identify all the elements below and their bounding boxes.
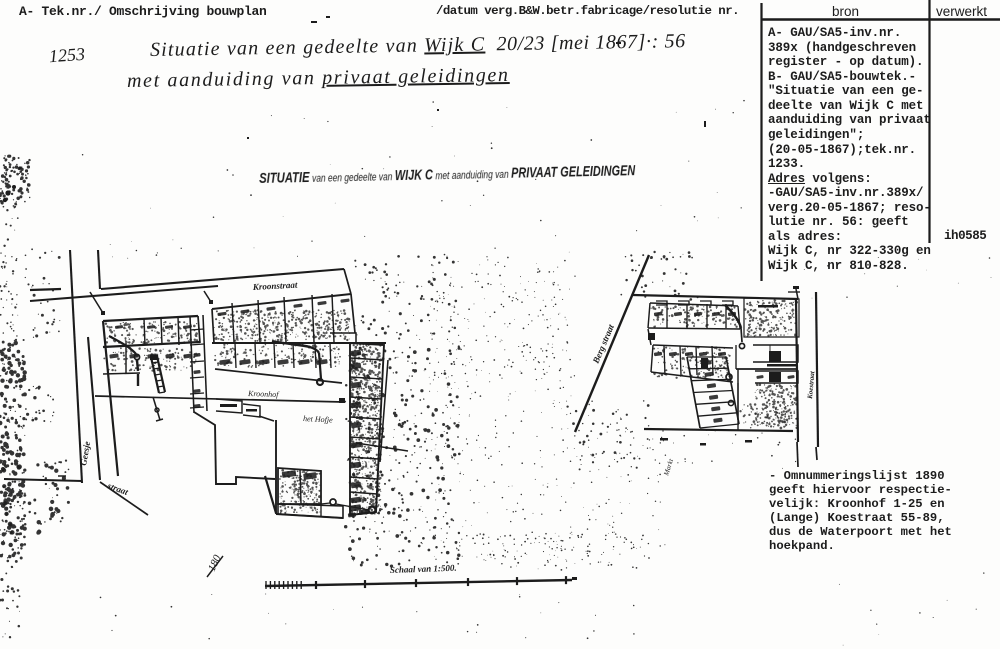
svg-text:180: 180 — [206, 553, 224, 573]
svg-text:het Hofje: het Hofje — [303, 414, 333, 425]
svg-text:Kroonstraat: Kroonstraat — [252, 280, 298, 292]
svg-text:Koestraat: Koestraat — [806, 370, 817, 400]
svg-text:Markt: Markt — [662, 457, 676, 478]
svg-text:Kroonhof: Kroonhof — [247, 389, 280, 399]
